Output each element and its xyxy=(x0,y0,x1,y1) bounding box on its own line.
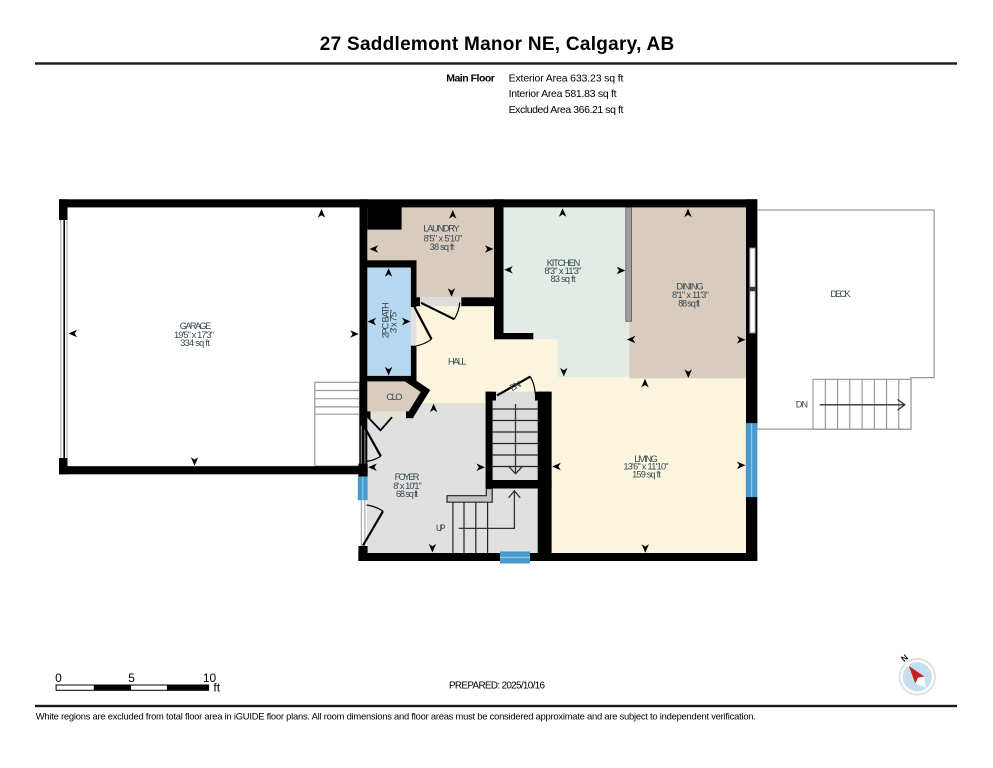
svg-text:DECK: DECK xyxy=(830,289,851,299)
svg-text:159 sq ft: 159 sq ft xyxy=(632,470,661,480)
svg-text:27 Saddlemont Manor NE, Calgar: 27 Saddlemont Manor NE, Calgary, AB xyxy=(320,34,674,55)
svg-text:38 sq ft: 38 sq ft xyxy=(430,242,455,252)
svg-text:ft: ft xyxy=(213,681,220,695)
svg-text:5: 5 xyxy=(128,671,135,685)
svg-text:0: 0 xyxy=(55,671,62,685)
svg-text:Exterior Area 633.23 sq ft: Exterior Area 633.23 sq ft xyxy=(509,73,624,85)
svg-text:UP: UP xyxy=(436,523,446,533)
svg-text:Interior Area 581.83 sq ft: Interior Area 581.83 sq ft xyxy=(509,88,617,100)
svg-text:334 sq ft: 334 sq ft xyxy=(180,338,210,348)
svg-text:88 sq ft: 88 sq ft xyxy=(678,299,700,309)
svg-text:CLO: CLO xyxy=(386,392,402,402)
svg-text:DN: DN xyxy=(796,400,808,410)
svg-text:LAUNDRY: LAUNDRY xyxy=(423,224,459,234)
svg-text:83 sq ft: 83 sq ft xyxy=(551,274,576,284)
svg-text:White regions are excluded fro: White regions are excluded from total fl… xyxy=(36,711,756,722)
svg-text:Main Floor: Main Floor xyxy=(446,73,495,85)
svg-text:Excluded Area 366.21 sq ft: Excluded Area 366.21 sq ft xyxy=(509,104,624,116)
svg-text:PREPARED: 2025/10/16: PREPARED: 2025/10/16 xyxy=(449,681,546,692)
svg-text:68 sq ft: 68 sq ft xyxy=(396,489,419,499)
svg-text:HALL: HALL xyxy=(448,357,467,367)
svg-text:3' x 7'5": 3' x 7'5" xyxy=(389,310,399,334)
